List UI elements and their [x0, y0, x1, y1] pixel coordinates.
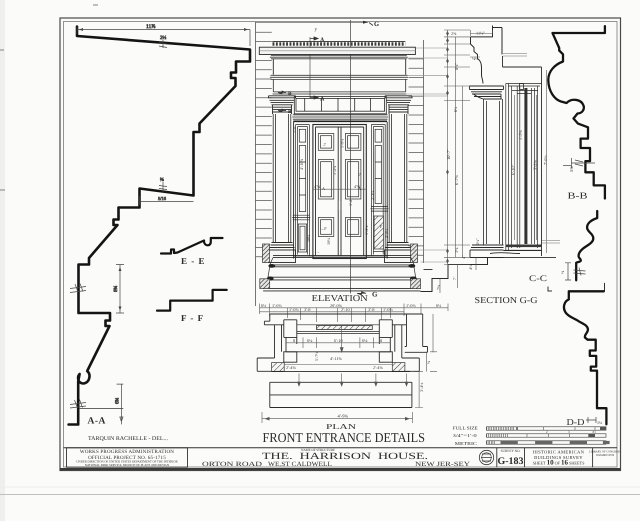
svg-text:2′-4⅛: 2′-4⅛ — [373, 365, 383, 370]
svg-text:10¾: 10¾ — [326, 238, 331, 245]
svg-text:WE.ST CALDWELL: WE.ST CALDWELL — [268, 461, 332, 468]
svg-text:NATIONAL PARK SERVICE, BRANCH: NATIONAL PARK SERVICE, BRANCH OF PLANS A… — [85, 463, 170, 467]
svg-text:10′-7′′: 10′-7′′ — [446, 149, 451, 160]
svg-text:4′-9⅜: 4′-9⅜ — [338, 414, 349, 419]
svg-text:1⅛: 1⅛ — [454, 247, 459, 253]
svg-text:11⅛′′: 11⅛′′ — [476, 31, 485, 36]
svg-text:FULL SIZE: FULL SIZE — [453, 426, 478, 431]
svg-text:1′-0¼: 1′-0¼ — [383, 307, 393, 312]
svg-text:A: A — [322, 186, 325, 191]
svg-text:NEW JER-SEY: NEW JER-SEY — [415, 461, 470, 468]
svg-text:4′-10¾: 4′-10¾ — [299, 159, 304, 170]
svg-text:6¾: 6¾ — [115, 398, 121, 405]
svg-text:¾: ¾ — [357, 173, 362, 176]
svg-text:G: G — [374, 21, 379, 28]
svg-text:8: 8 — [380, 338, 382, 343]
svg-text:1′-2¾: 1′-2¾ — [332, 166, 337, 175]
svg-text:A: A — [358, 186, 361, 191]
svg-text:7⅜: 7⅜ — [436, 285, 441, 290]
svg-text:1′-0: 1′-0 — [292, 127, 297, 133]
svg-text:2′-4⅛: 2′-4⅛ — [286, 365, 296, 370]
svg-text:HISTORIC AMERICAN: HISTORIC AMERICAN — [533, 450, 585, 455]
svg-text:3′-8: 3′-8 — [304, 307, 311, 312]
svg-text:6¼: 6¼ — [453, 107, 458, 112]
svg-text:5′-7⅛: 5′-7⅛ — [314, 352, 319, 361]
svg-text:2′-0½: 2′-0½ — [384, 229, 389, 238]
svg-text:6⅛: 6⅛ — [307, 338, 313, 343]
svg-text:B-B: B-B — [568, 191, 588, 201]
svg-text:6′-7⅜: 6′-7⅜ — [454, 175, 459, 185]
svg-text:6⅛: 6⅛ — [362, 338, 368, 343]
svg-text:A: A — [320, 97, 325, 103]
svg-text:7⁻: 7⁻ — [452, 276, 457, 280]
svg-text:WASHINGTON: WASHINGTON — [596, 454, 615, 457]
svg-text:1′-0¼: 1′-0¼ — [289, 307, 299, 312]
svg-text:6′-10: 6′-10 — [334, 338, 343, 343]
svg-text:½: ½ — [322, 143, 327, 146]
svg-text:G: G — [372, 291, 378, 299]
svg-text:E - E: E - E — [181, 256, 206, 266]
svg-text:→: → — [316, 249, 320, 254]
svg-text:5/16: 5/16 — [158, 196, 167, 201]
svg-text:8¾: 8¾ — [113, 286, 119, 293]
svg-text:ORTON ROAD: ORTON ROAD — [202, 461, 262, 468]
svg-text:⅜: ⅜ — [160, 177, 164, 183]
svg-text:METRIC: METRIC — [455, 441, 477, 446]
svg-text:2′-10: 2′-10 — [341, 307, 350, 312]
svg-text:4½: 4½ — [468, 265, 473, 270]
svg-text:1′-5⅛: 1′-5⅛ — [364, 226, 369, 235]
svg-text:TARQUIN RACHELLE - DEL...: TARQUIN RACHELLE - DEL... — [88, 436, 169, 442]
svg-text:SURVEY NO.: SURVEY NO. — [501, 449, 521, 453]
svg-text:C-C: C-C — [529, 273, 547, 283]
svg-text:B: B — [288, 91, 292, 97]
svg-text:G-183: G-183 — [497, 456, 523, 467]
svg-text:1′-0¼: 1′-0¼ — [406, 303, 416, 308]
svg-text:A-A: A-A — [88, 417, 106, 427]
svg-text:1′-5⅜: 1′-5⅜ — [518, 130, 523, 140]
svg-text:F - F: F - F — [181, 313, 204, 323]
svg-text:8⅛′′: 8⅛′′ — [454, 63, 459, 70]
svg-text:FRONT ENTRANCE DETAILS: FRONT ENTRANCE DETAILS — [263, 430, 426, 445]
svg-text:1⅛′′: 1⅛′′ — [475, 238, 480, 245]
svg-text:4⁻: 4⁻ — [461, 255, 466, 259]
svg-text:BUILDINGS SURVEY: BUILDINGS SURVEY — [534, 455, 583, 460]
svg-text:2½: 2½ — [160, 35, 167, 41]
svg-text:3/4′′=1′-0: 3/4′′=1′-0 — [453, 433, 478, 438]
svg-text:4′⅜: 4′⅜ — [314, 184, 321, 189]
svg-text:3′-8: 3′-8 — [368, 307, 375, 312]
svg-text:3′-4⅛: 3′-4⅛ — [419, 383, 424, 392]
svg-text:4′1: 4′1 — [592, 430, 596, 434]
svg-text:8: 8 — [293, 338, 295, 343]
svg-text:1′-0¼: 1′-0¼ — [272, 303, 282, 308]
svg-text:1¼: 1¼ — [597, 420, 602, 425]
svg-text:4′-11⅜: 4′-11⅜ — [330, 356, 342, 361]
svg-text:→F: →F — [320, 226, 327, 231]
svg-text:2′-3½: 2′-3½ — [370, 191, 375, 200]
svg-text:SECTION G-G: SECTION G-G — [475, 295, 539, 305]
svg-text:10⅛: 10⅛ — [306, 235, 311, 242]
svg-text:SHEET 10 OF 16 SHEETS: SHEET 10 OF 16 SHEETS — [533, 459, 586, 467]
svg-text:5⅜: 5⅜ — [569, 166, 574, 172]
svg-text:6¼: 6¼ — [436, 303, 441, 308]
svg-text:D-D: D-D — [567, 417, 586, 427]
svg-text:2⅜: 2⅜ — [451, 31, 457, 36]
svg-text:WORKS PROGRESS ADMINISTRATION: WORKS PROGRESS ADMINISTRATION — [80, 449, 174, 455]
svg-text:1′-2: 1′-2 — [348, 200, 353, 206]
svg-text:11⅞: 11⅞ — [146, 24, 155, 30]
svg-text:7′-0½: 7′-0½ — [543, 155, 548, 165]
svg-text:6¼: 6¼ — [261, 303, 266, 308]
svg-text:⅜: ⅜ — [426, 361, 431, 364]
svg-text:1′-0¼: 1′-0¼ — [340, 139, 345, 148]
